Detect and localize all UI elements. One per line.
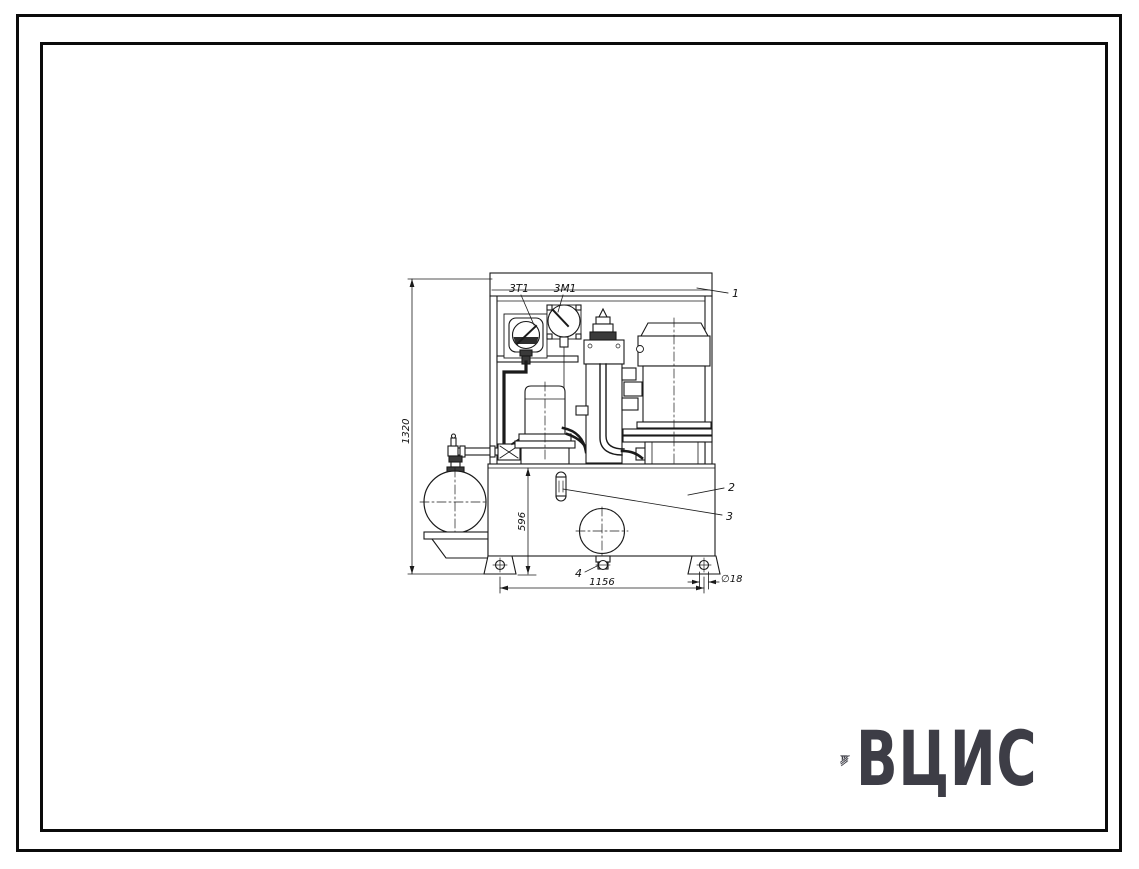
pressure-gauge (547, 305, 581, 388)
technical-drawing: 3Т1 3М1 (393, 253, 753, 608)
vcis-logo-emblem (840, 723, 850, 795)
overall-height-value: 1320 (401, 419, 412, 444)
gauge1-label: 3Т1 (509, 283, 529, 295)
callout-3: 3 (726, 510, 733, 523)
oil-level-sight-glass (556, 472, 566, 501)
callout-4: 4 (575, 567, 582, 580)
gauge2-label: 3М1 (554, 283, 576, 295)
drain-plug (596, 556, 610, 570)
callout-1: 1 (732, 287, 739, 300)
hole-diameter-value: ∅18 (721, 574, 742, 585)
vcis-logo-text: ВЦИС (856, 720, 1037, 798)
filter-column (576, 309, 624, 463)
callout-2: 2 (728, 481, 735, 494)
valve-manifold (622, 368, 646, 460)
dimension-foot-span: 1156 (500, 577, 704, 593)
temperature-gauge (504, 314, 547, 364)
oil-tank (488, 464, 715, 556)
tank-height-value: 596 (517, 512, 528, 531)
vcis-logo: ВЦИС (840, 720, 1108, 798)
accumulator (420, 468, 490, 558)
pump (515, 382, 589, 464)
foot-span-value: 1156 (589, 577, 614, 588)
